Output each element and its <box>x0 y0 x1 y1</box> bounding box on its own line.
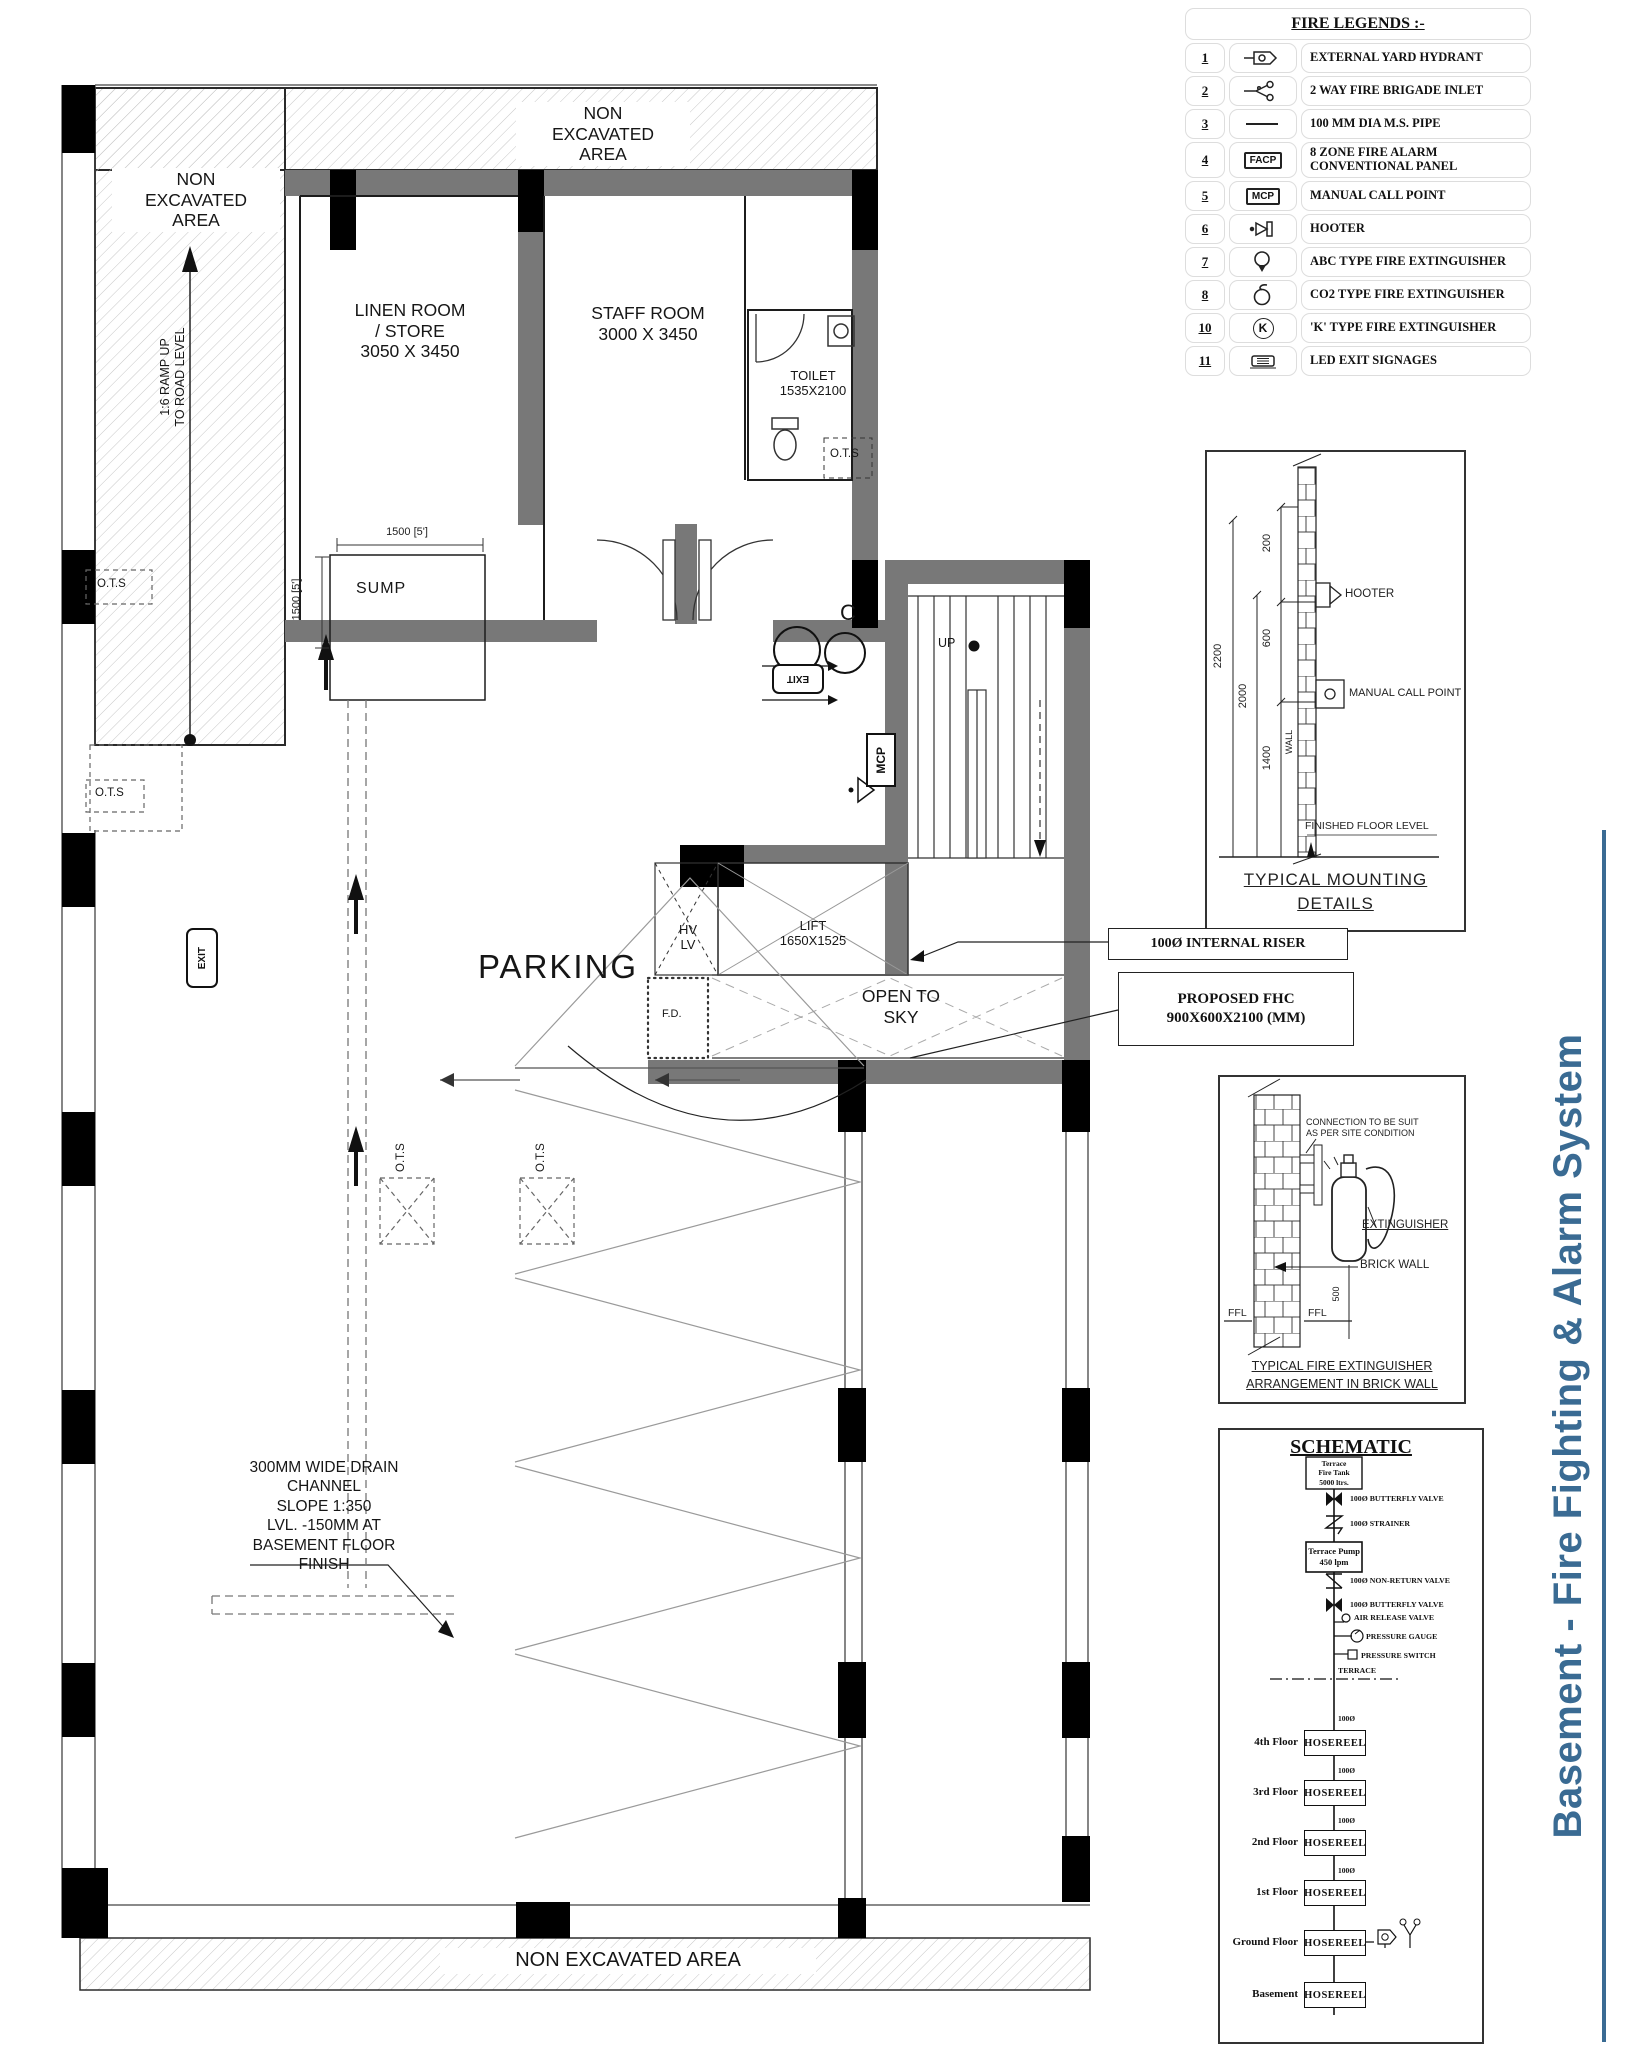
fd-label: F.D. <box>662 1008 682 1021</box>
exit-sign-corridor-label: EXIT <box>787 674 809 685</box>
hosereel-basement: HOSEREEL <box>1304 1982 1366 2008</box>
legend-row-3: 3 100 MM DIA M.S. PIPE <box>1185 109 1531 139</box>
dim-500: 500 <box>1331 1274 1341 1314</box>
extinguisher-label: EXTINGUISHER <box>1362 1219 1448 1231</box>
wall-label: WALL <box>1284 722 1294 762</box>
mcp-icon-text: MCP <box>1246 188 1280 205</box>
ots-label-parking-2: O.T.S <box>535 1102 549 1172</box>
ramp-label: 1:6 RAMP UP TO ROAD LEVEL <box>158 297 192 457</box>
pipe-label-1: 100Ø <box>1338 1714 1355 1723</box>
butterfly-valve-1-label: 100Ø BUTTERFLY VALVE <box>1350 1494 1444 1503</box>
legend-num-8: 8 <box>1185 280 1225 310</box>
legend-row-6: 6 HOOTER <box>1185 214 1531 244</box>
legend-label-2: 2 WAY FIRE BRIGADE INLET <box>1301 76 1531 106</box>
linen-room-label: LINEN ROOM / STORE 3050 X 3450 <box>320 300 500 362</box>
fire-legends-panel: FIRE LEGENDS :- 1 EXTERNAL YARD HYDRANT … <box>1185 8 1531 376</box>
legend-num-4: 4 <box>1185 142 1225 178</box>
facp-icon: FACP <box>1229 142 1297 178</box>
strainer-label: 100Ø STRAINER <box>1350 1519 1410 1528</box>
legend-num-7: 7 <box>1185 247 1225 277</box>
hosereel-4th: HOSEREEL <box>1304 1730 1366 1756</box>
abc-extinguisher-icon <box>1229 247 1297 277</box>
parking-markings <box>440 878 864 1838</box>
legend-num-6: 6 <box>1185 214 1225 244</box>
extinguisher-arrangement-box: CONNECTION TO BE SUIT AS PER SITE CONDIT… <box>1218 1075 1466 1404</box>
proposed-fhc-callout: PROPOSED FHC 900X600X2100 (MM) <box>1118 972 1354 1046</box>
legend-label-7: ABC TYPE FIRE EXTINGUISHER <box>1301 247 1531 277</box>
legend-row-10: 10 K 'K' TYPE FIRE EXTINGUISHER <box>1185 313 1531 343</box>
floor-label-basement: Basement <box>1220 1988 1298 2000</box>
extinguisher-title-line1: TYPICAL FIRE EXTINGUISHER <box>1220 1359 1464 1373</box>
legend-label-3: 100 MM DIA M.S. PIPE <box>1301 109 1531 139</box>
legend-label-4: 8 ZONE FIRE ALARM CONVENTIONAL PANEL <box>1301 142 1531 178</box>
legend-label-1: EXTERNAL YARD HYDRANT <box>1301 43 1531 73</box>
toilet-label: TOILET 1535X2100 <box>772 368 854 399</box>
exit-sign-corridor: EXIT <box>772 664 824 694</box>
dim-200: 200 <box>1261 520 1273 566</box>
extinguisher-c-mark: C <box>840 600 856 626</box>
legend-row-1: 1 EXTERNAL YARD HYDRANT <box>1185 43 1531 73</box>
terrace-fire-tank: Terrace Fire Tank 5000 ltrs. <box>1306 1459 1362 1487</box>
ots-label-parking-1: O.T.S <box>395 1102 409 1172</box>
extinguisher-title-line2: ARRANGEMENT IN BRICK WALL <box>1220 1377 1464 1391</box>
terrace-label: TERRACE <box>1338 1666 1376 1675</box>
hatched-areas <box>80 88 1090 1990</box>
legend-num-10: 10 <box>1185 313 1225 343</box>
non-excavated-area-top-label: NON EXCAVATED AREA <box>516 102 690 166</box>
hosereel-ground: HOSEREEL <box>1304 1930 1366 1956</box>
pipe-label-4: 100Ø <box>1338 1866 1355 1875</box>
pipe-label-2: 100Ø <box>1338 1766 1355 1775</box>
ots-label-toilet: O.T.S <box>830 448 859 462</box>
legend-row-5: 5 MCP MANUAL CALL POINT <box>1185 181 1531 211</box>
ffl-right-label: FFL <box>1308 1307 1327 1319</box>
legend-num-3: 3 <box>1185 109 1225 139</box>
legend-label-8: CO2 TYPE FIRE EXTINGUISHER <box>1301 280 1531 310</box>
hosereel-3rd: HOSEREEL <box>1304 1780 1366 1806</box>
ffl-left-label: FFL <box>1228 1307 1247 1319</box>
staff-room-label: STAFF ROOM 3000 X 3450 <box>558 303 738 344</box>
dim-2000: 2000 <box>1237 673 1249 719</box>
corridor-symbols <box>762 627 874 802</box>
k-extinguisher-icon: K <box>1229 313 1297 343</box>
non-excavated-area-bottom-label: NON EXCAVATED AREA <box>440 1948 816 1974</box>
floor-label-ground: Ground Floor <box>1220 1936 1298 1948</box>
hooter-icon <box>1229 214 1297 244</box>
mounting-details-title-line1: TYPICAL MOUNTING <box>1207 870 1464 890</box>
air-release-valve-label: AIR RELEASE VALVE <box>1354 1613 1434 1622</box>
legend-label-5: MANUAL CALL POINT <box>1301 181 1531 211</box>
legend-num-5: 5 <box>1185 181 1225 211</box>
k-icon-text: K <box>1253 318 1274 339</box>
pipe-icon <box>1229 109 1297 139</box>
legend-label-11: LED EXIT SIGNAGES <box>1301 346 1531 376</box>
mcp-wall-label: MCP <box>874 747 888 774</box>
schematic-box: SCHEMATIC Terrace Fire Tank 5000 ltrs. 1… <box>1218 1428 1484 2044</box>
floor-label-2nd: 2nd Floor <box>1220 1836 1298 1848</box>
legend-num-11: 11 <box>1185 346 1225 376</box>
co2-extinguisher-icon <box>1229 280 1297 310</box>
sump-label: SUMP <box>356 580 406 599</box>
pressure-gauge-label: PRESSURE GAUGE <box>1366 1632 1437 1641</box>
sheet-title: Basement - Fire Fighting & Alarm System <box>1546 830 1606 2042</box>
dim-2200: 2200 <box>1212 633 1224 679</box>
sump-height-dim: 1500 [5'] <box>291 564 304 634</box>
open-to-sky-label: OPEN TO SKY <box>845 986 957 1027</box>
mounting-hooter-label: HOOTER <box>1345 588 1394 600</box>
doors <box>597 314 804 620</box>
fire-brigade-inlet-icon <box>1229 76 1297 106</box>
floor-label-4th: 4th Floor <box>1220 1736 1298 1748</box>
typical-mounting-details-box: 2200 2000 1400 600 200 WALL HOOTER MANUA… <box>1205 450 1466 932</box>
pressure-switch-label: PRESSURE SWITCH <box>1361 1651 1436 1660</box>
terrace-pump: Terrace Pump 450 lpm <box>1306 1546 1362 1568</box>
dim-600: 600 <box>1261 615 1273 661</box>
dim-1400: 1400 <box>1261 735 1273 781</box>
hosereel-2nd: HOSEREEL <box>1304 1830 1366 1856</box>
stair-up-label: UP <box>938 636 955 651</box>
pipe-label-3: 100Ø <box>1338 1816 1355 1825</box>
parking-label: PARKING <box>478 948 638 987</box>
nrv-label: 100Ø NON-RETURN VALVE <box>1350 1576 1450 1585</box>
legend-num-2: 2 <box>1185 76 1225 106</box>
connection-note: CONNECTION TO BE SUIT AS PER SITE CONDIT… <box>1306 1117 1419 1140</box>
legend-num-1: 1 <box>1185 43 1225 73</box>
drain-channel-note: 300MM WIDE DRAIN CHANNEL SLOPE 1:350 LVL… <box>168 1458 480 1574</box>
fire-legends-title: FIRE LEGENDS :- <box>1185 8 1531 40</box>
lift-label: LIFT 1650X1525 <box>763 918 863 949</box>
non-excavated-area-top-left-label: NON EXCAVATED AREA <box>112 168 280 232</box>
internal-riser-callout: 100Ø INTERNAL RISER <box>1108 928 1348 960</box>
legend-row-4: 4 FACP 8 ZONE FIRE ALARM CONVENTIONAL PA… <box>1185 142 1531 178</box>
floor-label-1st: 1st Floor <box>1220 1886 1298 1898</box>
mcp-wall-box: MCP <box>866 733 896 787</box>
drain-arrows <box>318 634 364 1186</box>
led-exit-icon <box>1229 346 1297 376</box>
ots-label-left-2: O.T.S <box>95 787 124 801</box>
hv-lv-label: HV LV <box>668 922 708 953</box>
exit-sign-left: EXIT <box>186 928 218 988</box>
legend-row-11: 11 LED EXIT SIGNAGES <box>1185 346 1531 376</box>
ots-label-left-1: O.T.S <box>97 578 126 592</box>
legend-label-6: HOOTER <box>1301 214 1531 244</box>
floor-label-3rd: 3rd Floor <box>1220 1786 1298 1798</box>
exit-sign-left-label: EXIT <box>197 947 208 969</box>
finished-floor-level-label: FINISHED FLOOR LEVEL <box>1305 820 1429 832</box>
legend-row-7: 7 ABC TYPE FIRE EXTINGUISHER <box>1185 247 1531 277</box>
legend-label-10: 'K' TYPE FIRE EXTINGUISHER <box>1301 313 1531 343</box>
stairs <box>908 596 1064 858</box>
butterfly-valve-2-label: 100Ø BUTTERFLY VALVE <box>1350 1600 1444 1609</box>
legend-row-2: 2 2 WAY FIRE BRIGADE INLET <box>1185 76 1531 106</box>
sump-width-dim: 1500 [5'] <box>332 526 482 539</box>
brick-wall-label: BRICK WALL <box>1360 1259 1429 1271</box>
lift-and-services <box>648 863 1064 1058</box>
legend-row-8: 8 CO2 TYPE FIRE EXTINGUISHER <box>1185 280 1531 310</box>
mounting-mcp-label: MANUAL CALL POINT <box>1349 687 1461 699</box>
basement-fire-plan-sheet: NON EXCAVATED AREA NON EXCAVATED AREA 1:… <box>0 0 1638 2048</box>
yard-hydrant-icon <box>1229 43 1297 73</box>
hosereel-1st: HOSEREEL <box>1304 1880 1366 1906</box>
schematic-title: SCHEMATIC <box>1220 1436 1482 1459</box>
facp-icon-text: FACP <box>1244 152 1283 169</box>
mounting-details-title-line2: DETAILS <box>1207 894 1464 914</box>
mcp-icon: MCP <box>1229 181 1297 211</box>
